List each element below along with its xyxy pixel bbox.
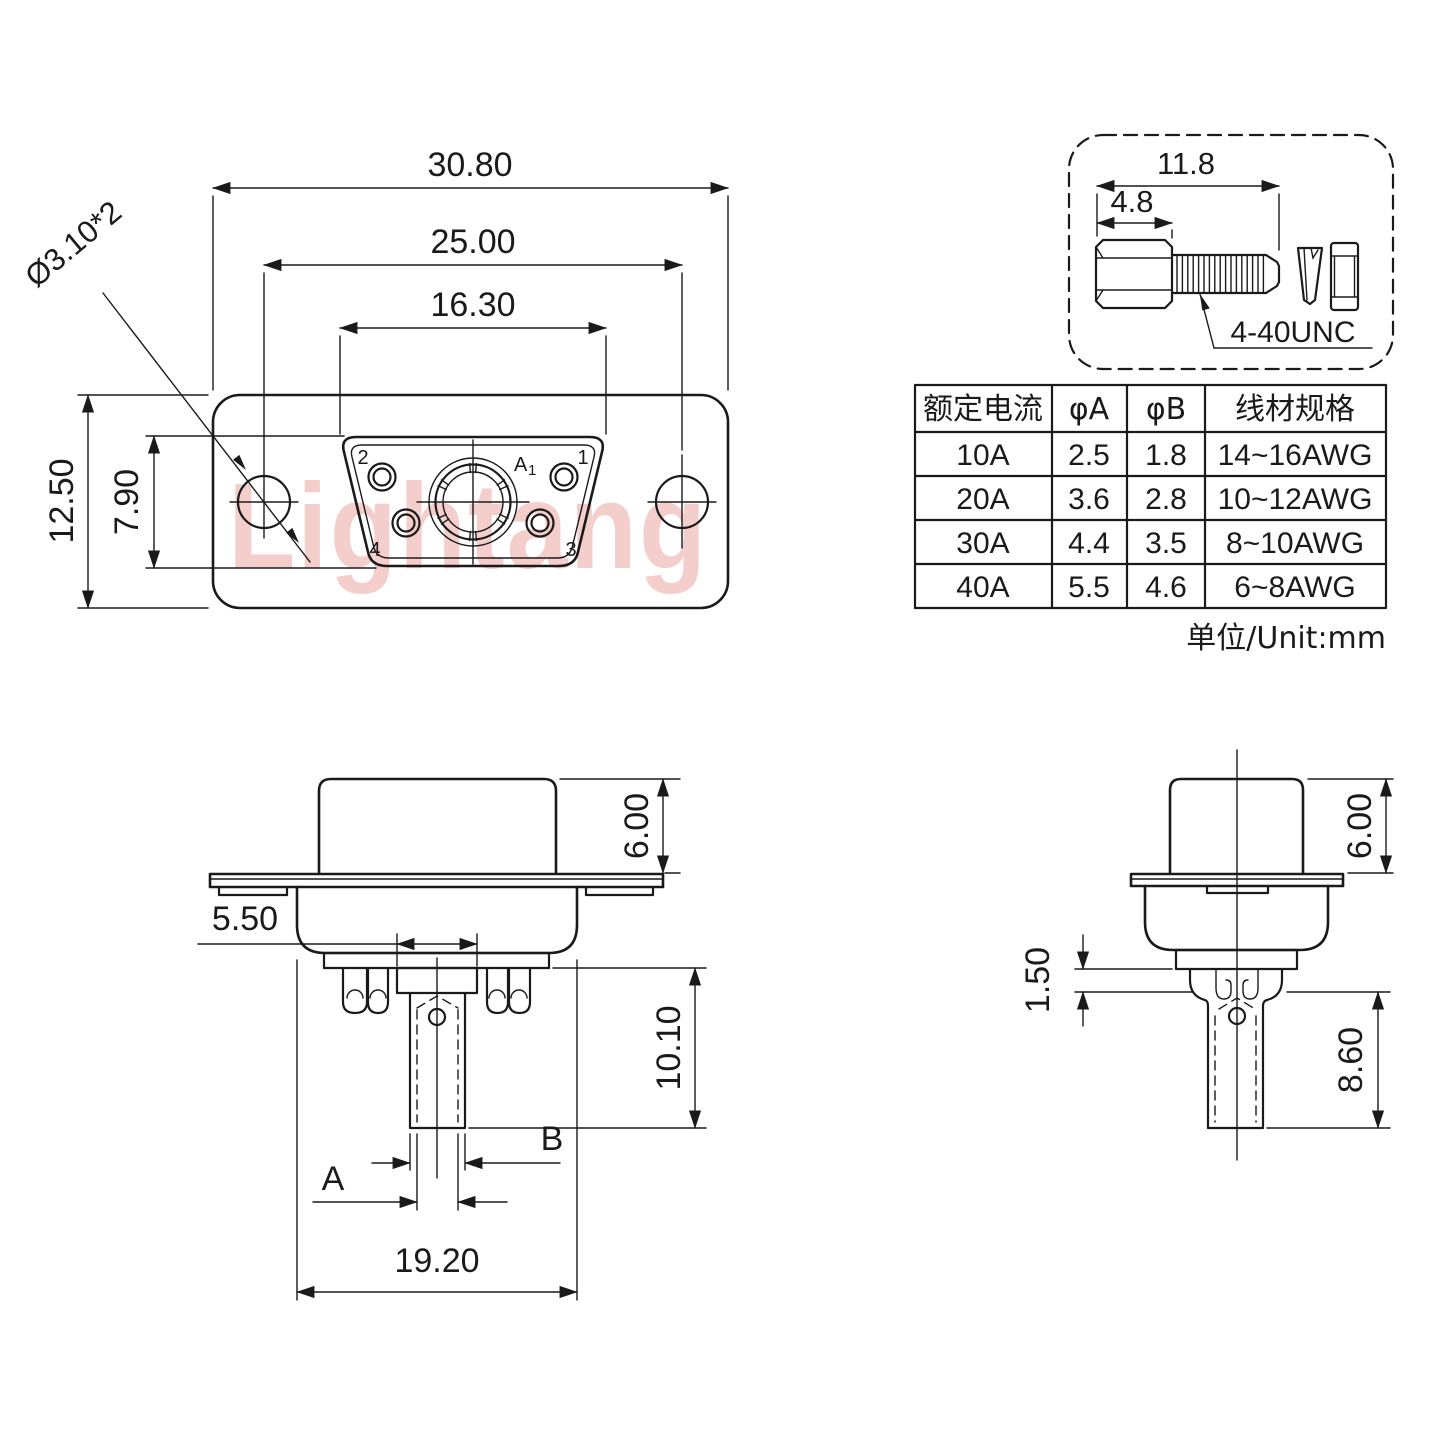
connector-drawing: Lightang 2 1 4 3 A 1 <box>0 0 1440 1440</box>
cell: 20A <box>956 483 1009 516</box>
cell: 3.6 <box>1068 483 1110 516</box>
clip-part <box>1298 248 1322 304</box>
thread-label: 4-40UNC <box>1230 316 1355 349</box>
dim-b-label: B <box>541 1120 564 1158</box>
unit-note: 单位/Unit:mm <box>1186 621 1386 656</box>
pin-label-a: A <box>514 454 528 476</box>
spec-table: 额定电流 φA φB 线材规格 10A 2.5 1.8 14~16AWG 20A… <box>915 385 1386 656</box>
dim-a-label: A <box>322 1160 345 1198</box>
cell: 10A <box>956 439 1009 472</box>
table-row: 20A 3.6 2.8 10~12AWG <box>956 483 1372 516</box>
cell: 14~16AWG <box>1218 439 1373 472</box>
side-view-front: 6.00 5.50 10.10 B A 19.20 <box>198 779 706 1300</box>
dim-shell: 6.00 <box>618 793 656 859</box>
dim-insert-height: 7.90 <box>108 469 146 535</box>
side-front-dimensions: 6.00 5.50 10.10 B A 19.20 <box>198 779 706 1300</box>
cell: 4.4 <box>1068 527 1110 560</box>
dim-insert-width: 16.30 <box>430 286 515 324</box>
table-header-0: 额定电流 <box>923 392 1043 427</box>
dim-body-width: 19.20 <box>394 1242 479 1280</box>
screw-head <box>1096 240 1172 308</box>
pin-label-2: 2 <box>357 447 368 469</box>
technical-drawing-page: Lightang 2 1 4 3 A 1 <box>0 0 1440 1440</box>
screw-thread <box>1172 255 1279 293</box>
pin-label-3: 3 <box>565 539 576 561</box>
side-side-dimensions: 6.00 1.50 8.60 <box>1019 779 1393 1128</box>
table-header-2: φB <box>1146 392 1186 427</box>
sleeve-part <box>1331 243 1358 310</box>
dim-head-length: 4.8 <box>1110 184 1153 219</box>
dim-tail: 10.10 <box>650 1005 688 1090</box>
cell: 10~12AWG <box>1218 483 1373 516</box>
table-row: 40A 5.5 4.6 6~8AWG <box>956 571 1355 604</box>
cell: 40A <box>956 571 1009 604</box>
table-row: 30A 4.4 3.5 8~10AWG <box>956 527 1364 560</box>
screw-head-facets <box>1096 247 1172 301</box>
cell: 8~10AWG <box>1226 527 1364 560</box>
dim-width: 30.80 <box>427 146 512 184</box>
cell: 30A <box>956 527 1009 560</box>
flange-plate <box>210 874 663 887</box>
table-header-3: 线材规格 <box>1235 392 1355 427</box>
cell: 6~8AWG <box>1234 571 1355 604</box>
dim-hole-note: Ø3.10*2 <box>18 194 128 294</box>
dim-total-length: 11.8 <box>1157 146 1215 181</box>
dim-shell-side: 6.00 <box>1341 793 1379 859</box>
screw-detail: 11.8 4.8 4-40UNC <box>1069 135 1393 369</box>
dim-barrel: 8.60 <box>1332 1027 1370 1093</box>
dim-step: 1.50 <box>1019 947 1057 1013</box>
cell: 2.5 <box>1068 439 1110 472</box>
crimp-section <box>1190 969 1282 1010</box>
cell: 3.5 <box>1145 527 1187 560</box>
pin-label-4: 4 <box>369 539 380 561</box>
dim-hole-spacing: 25.00 <box>430 223 515 261</box>
table-row: 10A 2.5 1.8 14~16AWG <box>956 439 1372 472</box>
dim-crimp: 5.50 <box>212 900 278 938</box>
side-view-side: 6.00 1.50 8.60 <box>1019 750 1393 1160</box>
cell: 2.8 <box>1145 483 1187 516</box>
cell: 5.5 <box>1068 571 1110 604</box>
table-header-1: φA <box>1069 392 1110 427</box>
dim-height: 12.50 <box>43 458 81 543</box>
cell: 1.8 <box>1145 439 1187 472</box>
watermark-text: Lightang <box>228 458 708 594</box>
hood <box>319 779 556 873</box>
pin-label-a-sub: 1 <box>528 462 536 479</box>
pin-label-1: 1 <box>577 447 588 469</box>
body-shell <box>297 887 577 953</box>
wire-barrel <box>1208 750 1263 1160</box>
cell: 4.6 <box>1145 571 1187 604</box>
